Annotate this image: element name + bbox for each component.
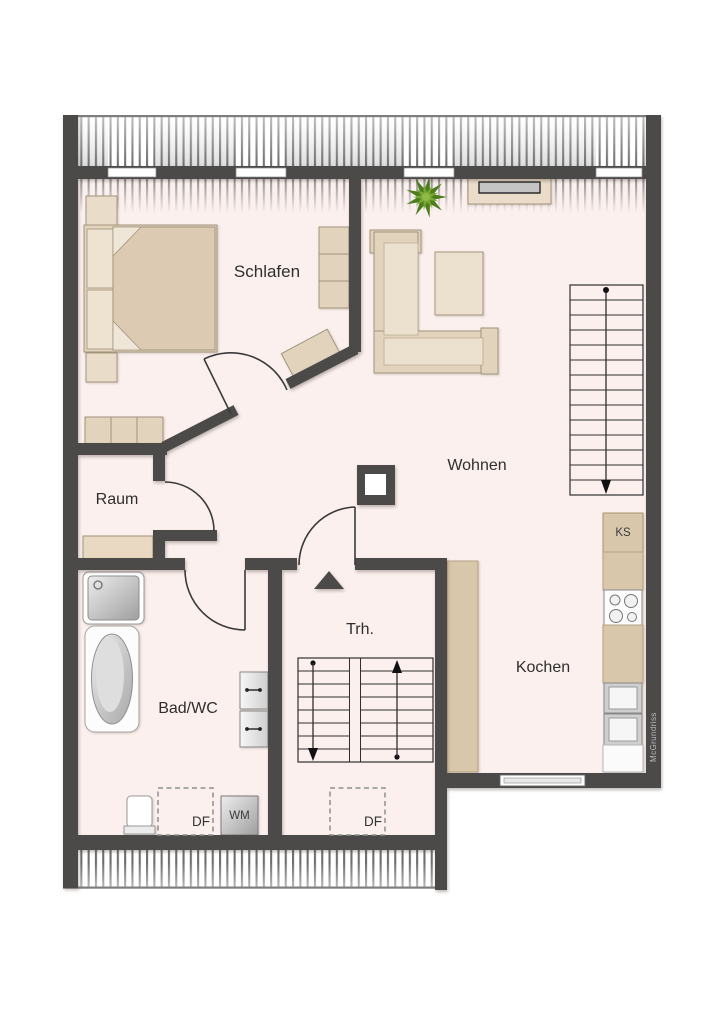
room-label-raum: Raum: [96, 491, 139, 508]
window-kitchen: [500, 775, 585, 786]
window: [236, 168, 286, 177]
staircase-wohnen: [570, 285, 643, 495]
room-label-wohnen: Wohnen: [447, 457, 506, 474]
roof-slope-hatching-interior: [63, 179, 661, 213]
wall-bad-north-mid: [245, 558, 297, 570]
bathtub: [85, 626, 139, 732]
wall-left: [63, 115, 78, 888]
window: [108, 168, 156, 177]
coffee-table: [435, 252, 483, 315]
room-label-schlafen: Schlafen: [234, 262, 300, 281]
room-label-kochen: Kochen: [516, 659, 570, 676]
tv: [479, 182, 540, 193]
washbasin: [240, 711, 268, 747]
room-label-bad: Bad/WC: [158, 700, 218, 717]
wall-trh-north-east: [355, 558, 447, 570]
wall-divider-schlafen-wohnen: [349, 166, 361, 352]
kitchen-sink: [604, 683, 642, 745]
door-leaf-raum: [164, 530, 217, 541]
room-label-trh: Trh.: [346, 621, 374, 638]
chimney-flue: [365, 474, 386, 495]
wall-raum-north: [63, 443, 167, 455]
wall-bad-north-west: [63, 558, 185, 570]
shelf: [83, 536, 153, 559]
kitchen-counter-left: [447, 561, 478, 772]
wall-right: [646, 115, 661, 788]
wall-trh-east: [435, 560, 447, 890]
marker-ks: KS: [615, 527, 631, 539]
wardrobe: [319, 227, 349, 308]
marker-df-bad: DF: [192, 814, 210, 829]
window: [404, 168, 454, 177]
kitchen-counter-right: [603, 513, 643, 772]
watermark: McGrundriss: [649, 712, 658, 762]
window: [596, 168, 642, 177]
cooktop: [604, 590, 642, 625]
staircase-trh: [298, 658, 433, 762]
washbasin: [240, 672, 268, 709]
wall-bad-trh: [268, 570, 282, 835]
wall-bottom: [63, 835, 447, 850]
wall-raum-jamb: [153, 443, 165, 481]
nightstand: [86, 196, 117, 225]
roof-hatching-top: [63, 115, 661, 166]
roof-hatching-bottom: [63, 850, 447, 889]
marker-wm: WM: [229, 810, 249, 822]
double-bed: [84, 225, 217, 352]
floorplan-canvas: Schlafen Raum Wohnen Trh. Bad/WC Kochen …: [0, 0, 724, 1024]
floorplan-page: Schlafen Raum Wohnen Trh. Bad/WC Kochen …: [0, 0, 724, 1024]
nightstand: [86, 353, 117, 382]
marker-df-trh: DF: [364, 814, 382, 829]
shower: [83, 572, 144, 624]
toilet: [124, 796, 155, 834]
